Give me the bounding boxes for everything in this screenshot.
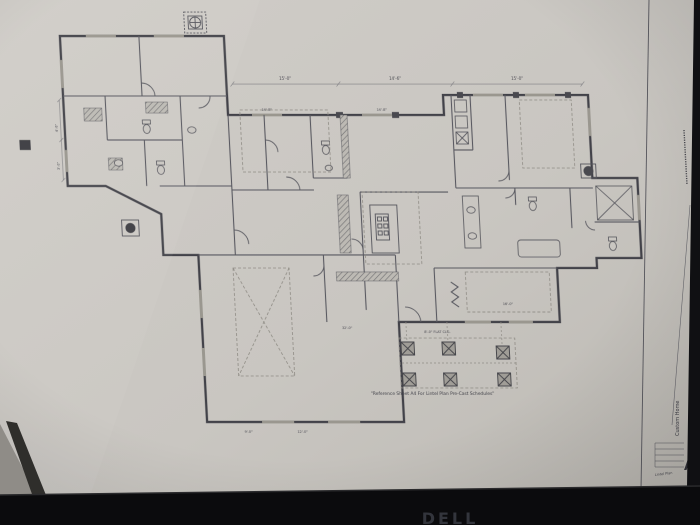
photo-of-monitor: 15'-0" 14'-6" 15'-0" 14'-8" 14'-8" 4'-6"… bbox=[0, 0, 700, 525]
screen-photo-svg: 15'-0" 14'-6" 15'-0" 14'-8" 14'-8" 4'-6"… bbox=[0, 0, 700, 525]
dell-logo: DELL bbox=[422, 509, 479, 525]
